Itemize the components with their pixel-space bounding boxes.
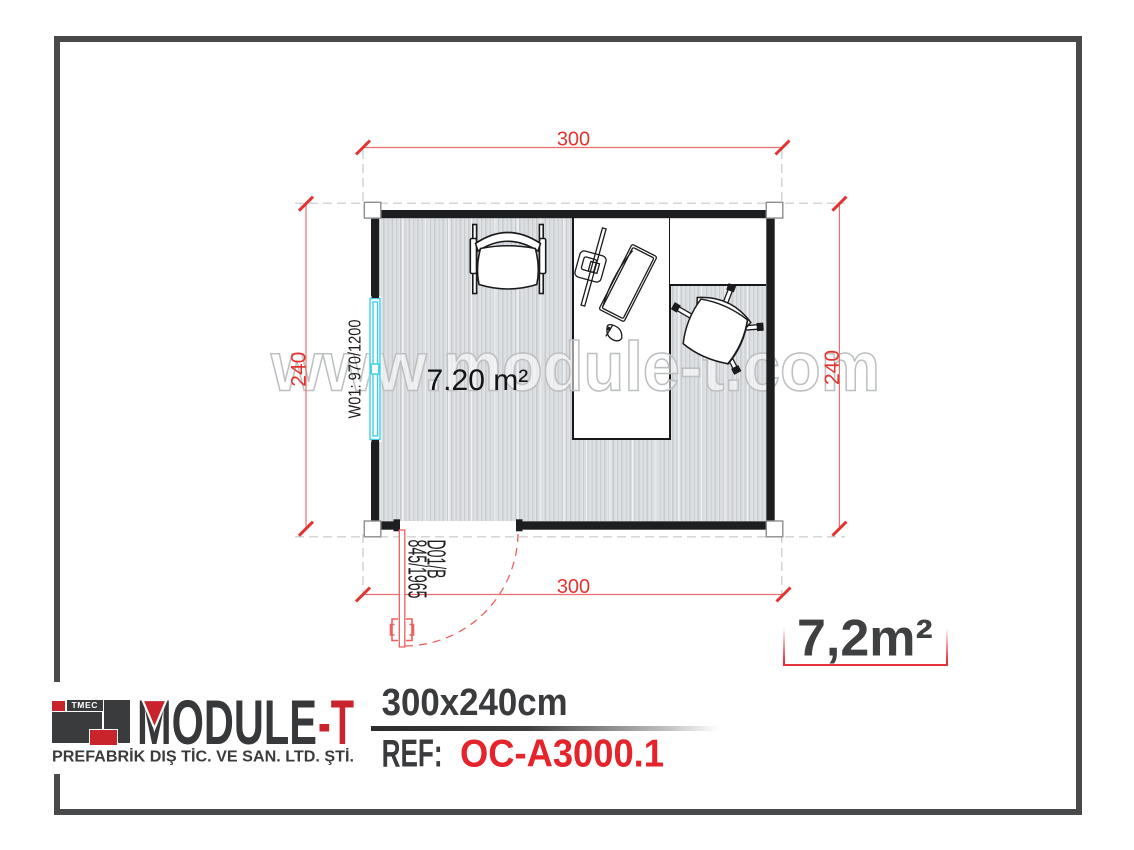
svg-text:MODULE: MODULE bbox=[137, 688, 317, 758]
svg-text:OC-A3000.1: OC-A3000.1 bbox=[460, 733, 664, 776]
svg-text:PREFABRİK DIŞ TİC. VE SAN. LTD: PREFABRİK DIŞ TİC. VE SAN. LTD. ŞTİ. bbox=[52, 749, 354, 766]
svg-text:300x240cm: 300x240cm bbox=[382, 682, 568, 724]
svg-text:REF:: REF: bbox=[382, 733, 443, 776]
svg-text:-T: -T bbox=[318, 688, 354, 758]
